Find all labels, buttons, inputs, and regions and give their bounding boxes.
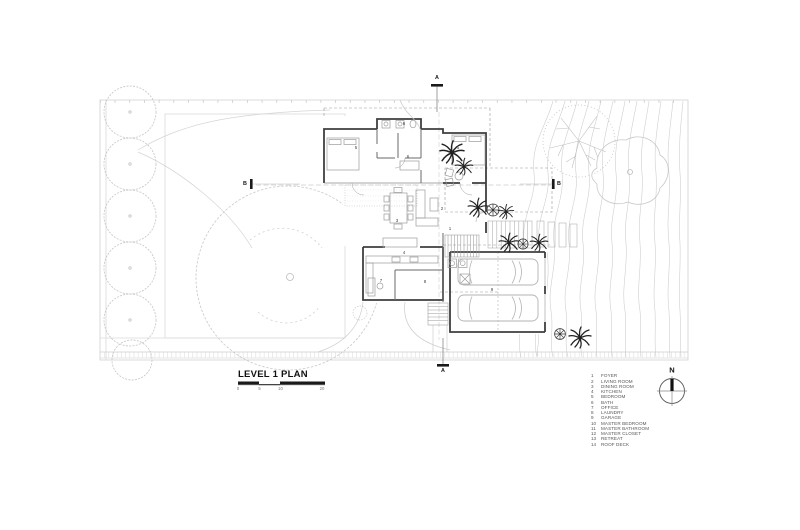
room-label-living: 2 — [441, 207, 444, 212]
room-label-bedroom: 5 — [355, 146, 358, 151]
floor-plan-sheet: LEVEL 1 PLAN 0 5 10 20 N A A B B 5 6 6 5… — [0, 0, 800, 530]
scale-tick: 5 — [258, 387, 260, 391]
room-label-garage: 9 — [491, 288, 494, 293]
legend-item: 14ROOF DECK — [591, 442, 649, 447]
section-letter-a-bottom: A — [441, 368, 445, 374]
room-label-laundry: 8 — [424, 280, 427, 285]
fan-palm-icon — [518, 239, 528, 249]
plan-title: LEVEL 1 PLAN — [238, 369, 308, 380]
palm-tree-icon — [498, 204, 513, 219]
fan-palm-icon — [555, 329, 566, 340]
room-label-dining: 3 — [396, 219, 399, 224]
room-label-office: 7 — [380, 279, 383, 284]
room-label-bedroom: 5 — [457, 146, 460, 151]
palm-tree-icon — [530, 234, 548, 251]
scale-tick: 10 — [278, 387, 283, 391]
entry-steps — [488, 221, 577, 248]
room-label-foyer: 1 — [449, 227, 452, 232]
street-edge — [100, 352, 688, 358]
scale-bar — [238, 382, 325, 386]
site-plan-drawing — [0, 0, 800, 530]
scale-tick: 0 — [237, 387, 239, 391]
section-marker-b-left — [250, 179, 300, 189]
room-label-bath: 6 — [407, 155, 410, 160]
north-arrow-icon — [657, 376, 687, 406]
section-marker-b-right — [520, 179, 555, 189]
scale-tick: 20 — [320, 387, 325, 391]
north-label: N — [669, 366, 674, 375]
palm-tree-icon — [569, 327, 591, 348]
room-label-bath: 6 — [403, 122, 406, 127]
room-legend: 1FOYER 2LIVING ROOM 3DINING ROOM 4KITCHE… — [591, 374, 649, 448]
section-letter-a-top: A — [435, 75, 439, 81]
room-label-kitchen: 4 — [403, 251, 406, 256]
tree-row — [104, 86, 156, 380]
section-letter-b-left: B — [243, 181, 247, 187]
fan-palm-icon — [487, 204, 499, 216]
lawn — [100, 110, 345, 338]
section-letter-b-right: B — [557, 181, 561, 187]
